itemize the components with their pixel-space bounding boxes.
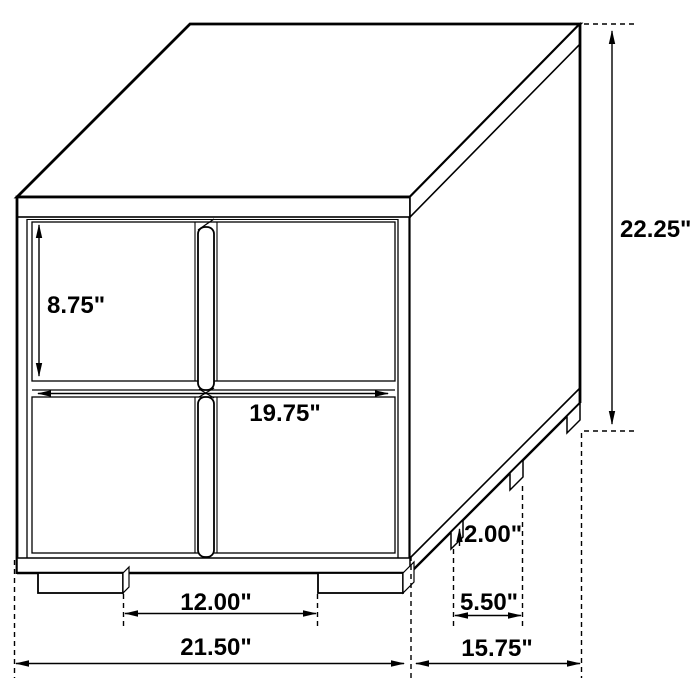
dim-side-foot-gap-label: 5.50" xyxy=(460,589,518,616)
dim-front-foot-gap: 12.00" xyxy=(124,589,318,628)
dim-front-foot-gap-label: 12.00" xyxy=(180,589,251,616)
plinth-front-band xyxy=(17,558,410,573)
front-right-foot xyxy=(318,573,403,593)
top-panel xyxy=(16,24,580,217)
bottom-drawer-handle xyxy=(198,397,214,557)
dim-foot-height-label: 2.00" xyxy=(464,521,522,548)
dim-overall-depth-label: 15.75" xyxy=(461,635,532,662)
dim-overall-height-label: 22.25" xyxy=(620,216,691,243)
back-right-foot xyxy=(567,403,580,433)
dim-foot-height: 2.00" xyxy=(460,521,523,548)
top-panel-front-edge xyxy=(17,197,410,217)
dim-overall-height: 22.25" xyxy=(584,24,691,431)
diagram-canvas: 8.75" 19.75" 22.25" 12.00" 21.50" xyxy=(0,0,700,700)
dim-drawer-height-label: 8.75" xyxy=(47,292,105,319)
dim-overall-depth: 15.75" xyxy=(411,433,582,678)
cabinet-front-face xyxy=(17,197,410,574)
dim-drawer-height: 8.75" xyxy=(39,225,105,376)
front-left-foot xyxy=(38,573,123,593)
dim-side-foot-gap: 5.50" xyxy=(454,486,523,628)
nightstand-dimension-drawing: 8.75" 19.75" 22.25" 12.00" 21.50" xyxy=(0,0,700,700)
side-foot-middle-back xyxy=(510,460,523,490)
dim-overall-width-label: 21.50" xyxy=(180,634,251,661)
plinth xyxy=(17,558,410,573)
dim-drawer-width-label: 19.75" xyxy=(249,400,320,427)
top-drawer-handle xyxy=(198,227,214,390)
